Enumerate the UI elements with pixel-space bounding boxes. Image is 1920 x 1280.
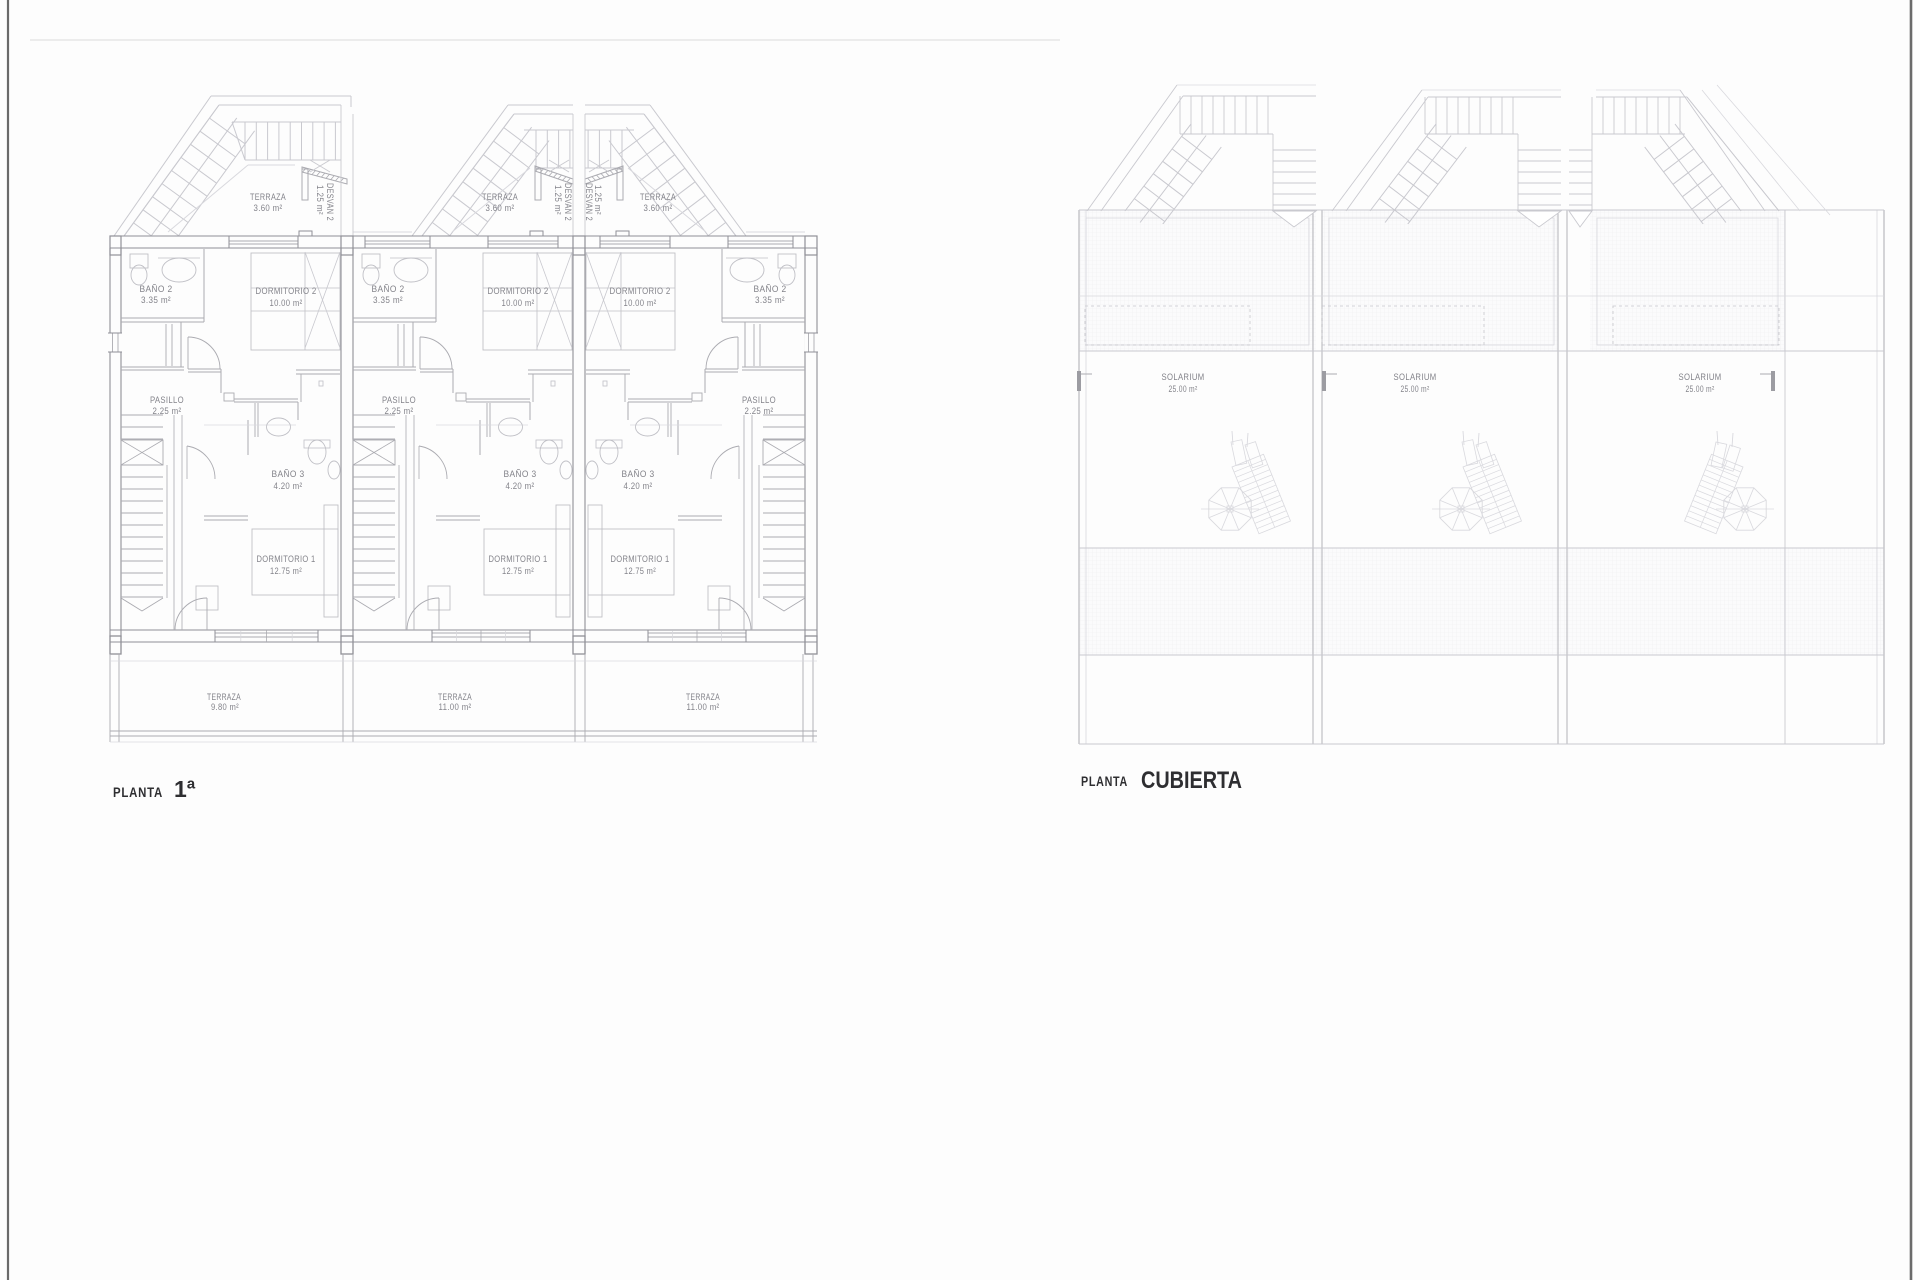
svg-text:TERRAZA: TERRAZA [438,692,472,702]
svg-text:2.25 m²: 2.25 m² [153,406,182,416]
svg-text:TERRAZA: TERRAZA [640,192,676,202]
svg-text:10.00 m²: 10.00 m² [502,298,535,308]
svg-text:BAÑO 2: BAÑO 2 [754,284,787,294]
svg-text:BAÑO 2: BAÑO 2 [140,284,173,294]
svg-text:PASILLO: PASILLO [382,395,416,405]
svg-text:1.25 m²: 1.25 m² [315,185,325,215]
svg-text:DESVAN 2: DESVAN 2 [584,183,594,221]
svg-text:PLANTA: PLANTA [113,785,163,800]
svg-text:4.20 m²: 4.20 m² [624,481,653,491]
svg-text:25.00 m²: 25.00 m² [1686,384,1715,394]
svg-text:TERRAZA: TERRAZA [686,692,720,702]
svg-text:11.00 m²: 11.00 m² [687,702,720,712]
svg-text:12.75 m²: 12.75 m² [270,566,302,576]
svg-text:2.25 m²: 2.25 m² [745,406,774,416]
svg-text:PASILLO: PASILLO [742,395,776,405]
svg-text:DORMITORIO 2: DORMITORIO 2 [256,286,317,296]
svg-text:PASILLO: PASILLO [150,395,184,405]
svg-text:2.25 m²: 2.25 m² [385,406,414,416]
svg-text:DORMITORIO 1: DORMITORIO 1 [489,554,548,564]
svg-text:TERRAZA: TERRAZA [250,192,286,202]
svg-text:CUBIERTA: CUBIERTA [1141,767,1242,794]
svg-text:3.35 m²: 3.35 m² [755,295,785,305]
svg-text:3.60 m²: 3.60 m² [644,203,673,213]
svg-text:25.00 m²: 25.00 m² [1169,384,1198,394]
svg-text:DORMITORIO 1: DORMITORIO 1 [611,554,670,564]
svg-text:1.25 m²: 1.25 m² [553,185,563,215]
svg-text:3.60 m²: 3.60 m² [254,203,283,213]
svg-text:DORMITORIO 1: DORMITORIO 1 [257,554,316,564]
svg-text:3.35 m²: 3.35 m² [141,295,171,305]
svg-text:BAÑO 2: BAÑO 2 [372,284,405,294]
svg-text:DORMITORIO 2: DORMITORIO 2 [488,286,549,296]
svg-text:DESVAN 2: DESVAN 2 [325,183,335,221]
svg-text:PLANTA: PLANTA [1081,774,1128,789]
svg-text:BAÑO 3: BAÑO 3 [272,469,305,479]
svg-text:1ª: 1ª [174,776,196,802]
svg-text:3.35 m²: 3.35 m² [373,295,403,305]
svg-text:11.00 m²: 11.00 m² [439,702,472,712]
svg-text:DORMITORIO 2: DORMITORIO 2 [610,286,671,296]
svg-text:BAÑO 3: BAÑO 3 [622,469,655,479]
svg-text:BAÑO 3: BAÑO 3 [504,469,537,479]
svg-text:9.80 m²: 9.80 m² [211,702,239,712]
svg-text:1.25 m²: 1.25 m² [593,185,603,215]
svg-text:4.20 m²: 4.20 m² [274,481,303,491]
svg-text:SOLARIUM: SOLARIUM [1679,372,1722,382]
svg-text:10.00 m²: 10.00 m² [624,298,657,308]
svg-text:4.20 m²: 4.20 m² [506,481,535,491]
svg-text:TERRAZA: TERRAZA [207,692,241,702]
svg-text:TERRAZA: TERRAZA [482,192,518,202]
svg-text:3.60 m²: 3.60 m² [486,203,515,213]
svg-text:12.75 m²: 12.75 m² [624,566,656,576]
svg-text:SOLARIUM: SOLARIUM [1394,372,1437,382]
svg-text:10.00 m²: 10.00 m² [270,298,303,308]
svg-text:DESVAN 2: DESVAN 2 [563,183,573,221]
svg-text:SOLARIUM: SOLARIUM [1162,372,1205,382]
svg-text:25.00 m²: 25.00 m² [1401,384,1430,394]
svg-text:12.75 m²: 12.75 m² [502,566,534,576]
